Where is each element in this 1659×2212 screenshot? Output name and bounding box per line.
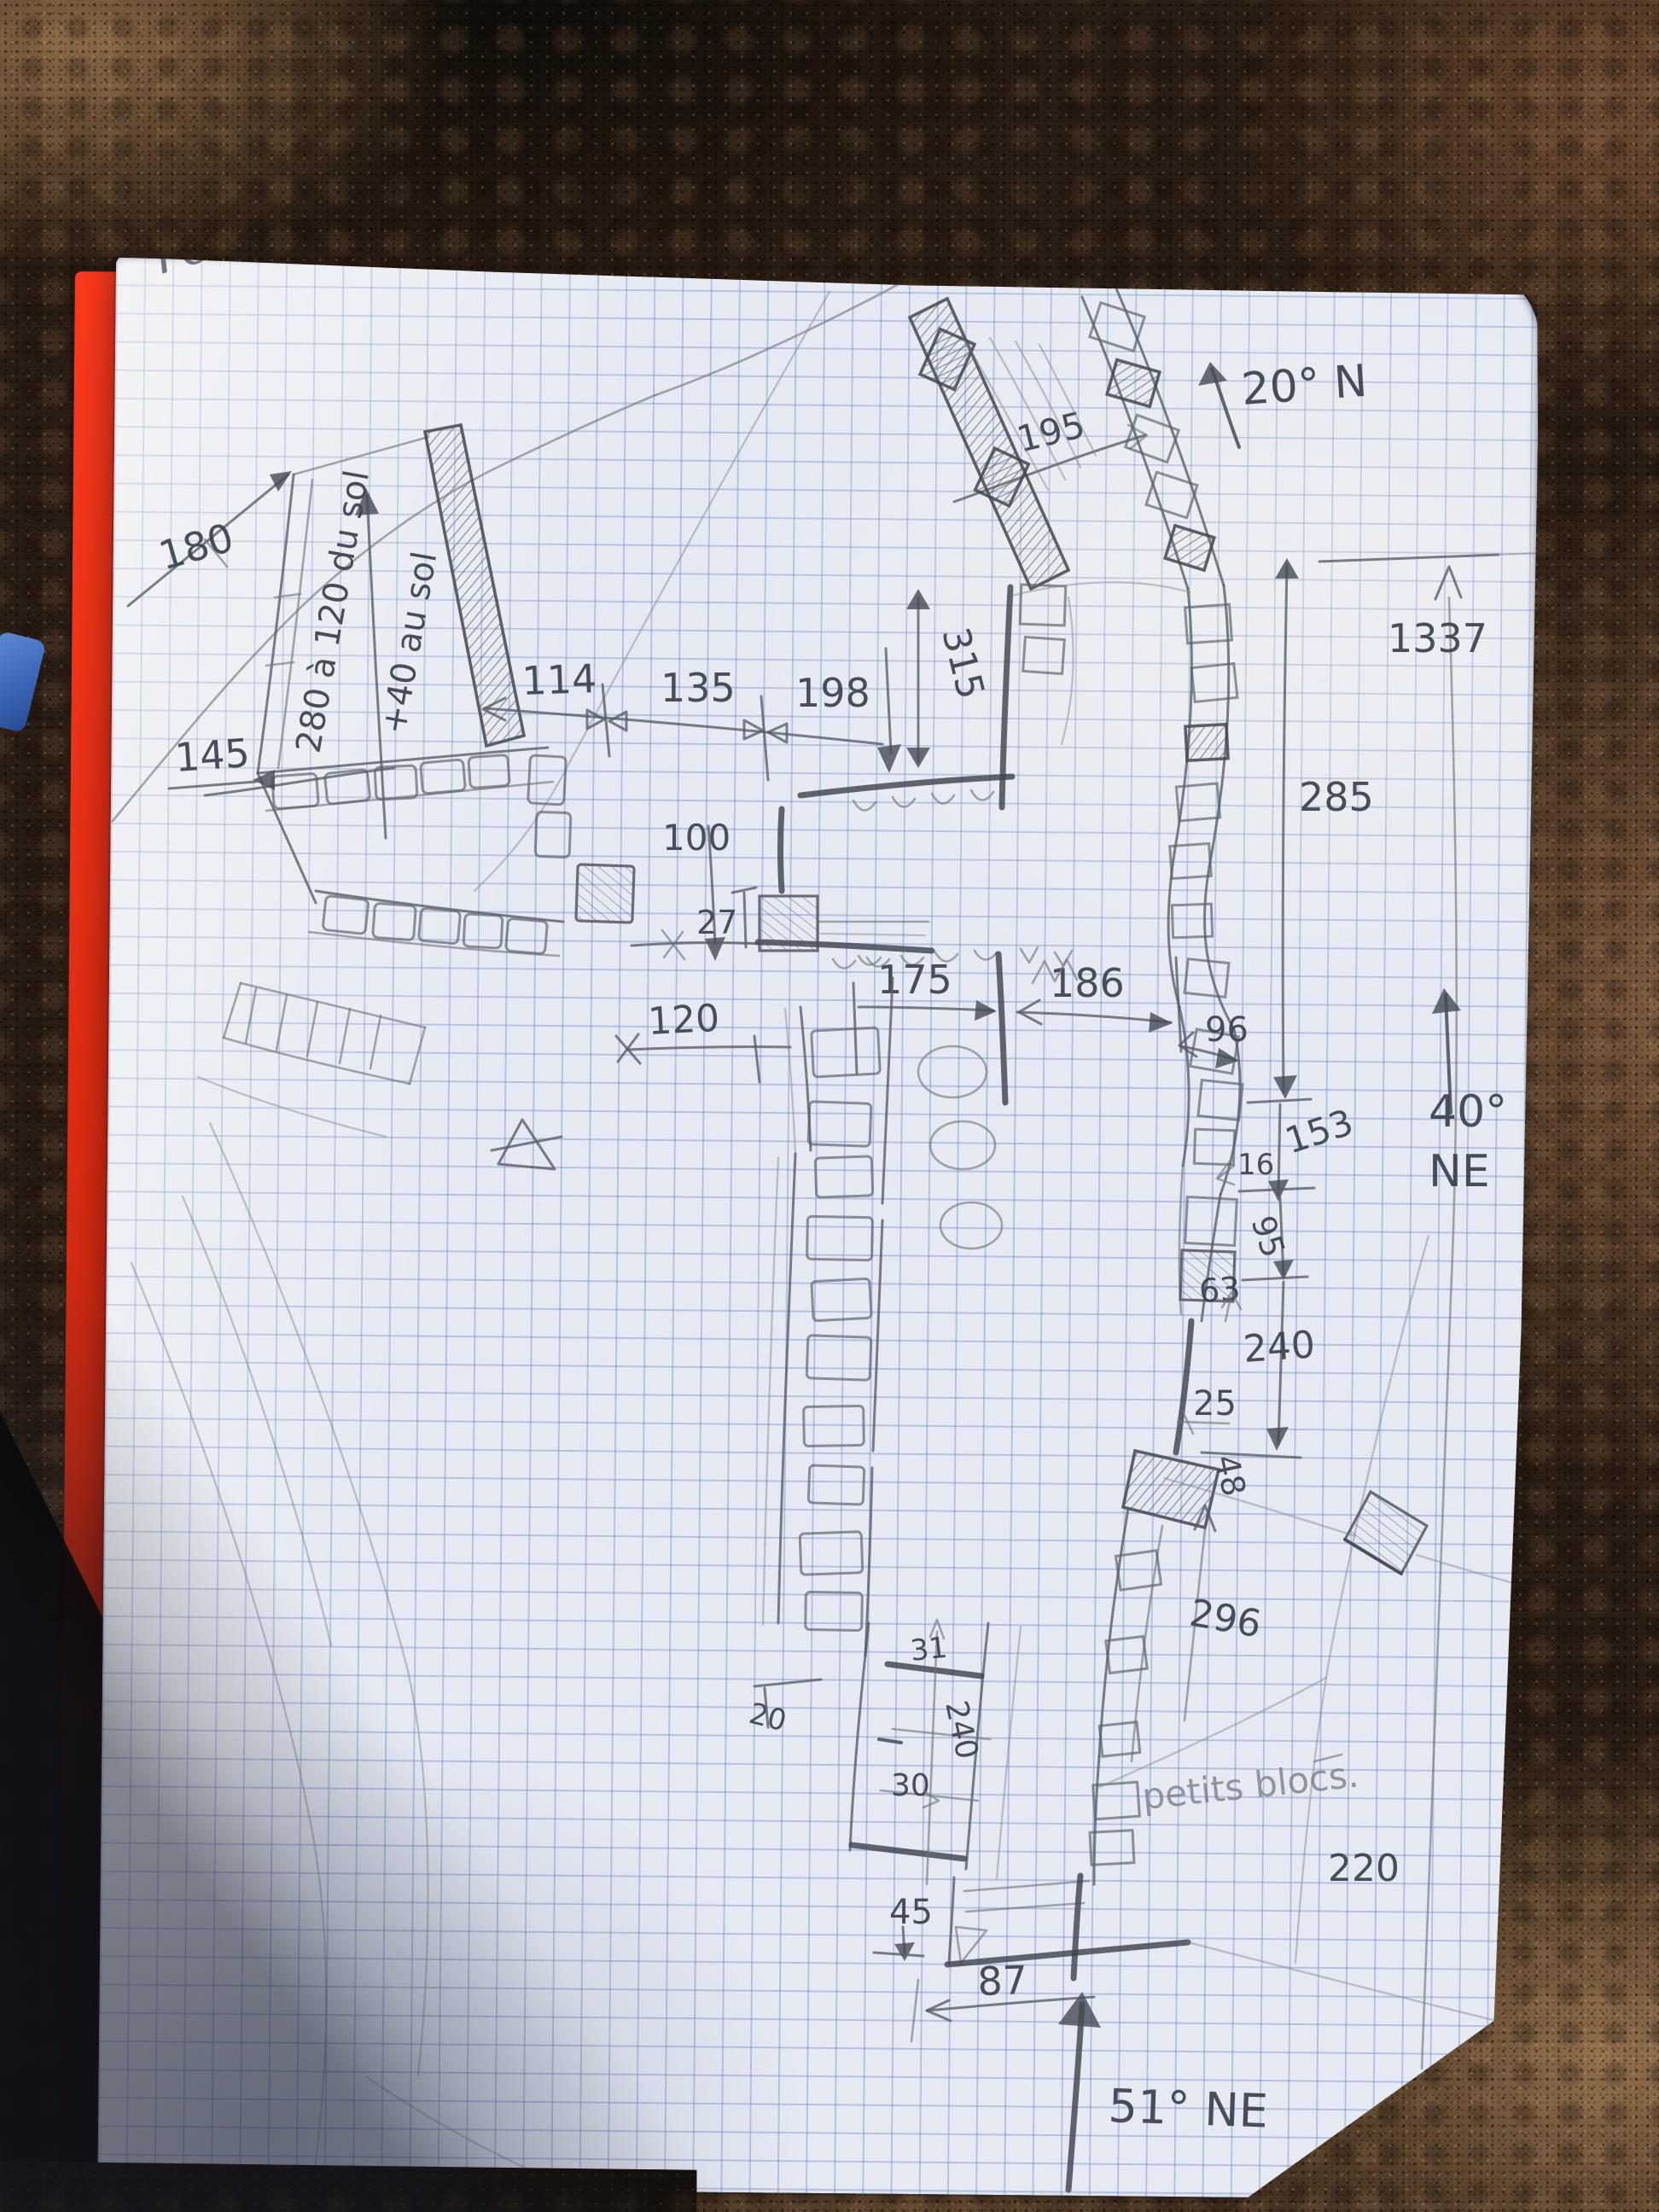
notebook-grid-page	[97, 256, 1540, 2200]
field-photo: rocher	[0, 0, 1659, 2212]
